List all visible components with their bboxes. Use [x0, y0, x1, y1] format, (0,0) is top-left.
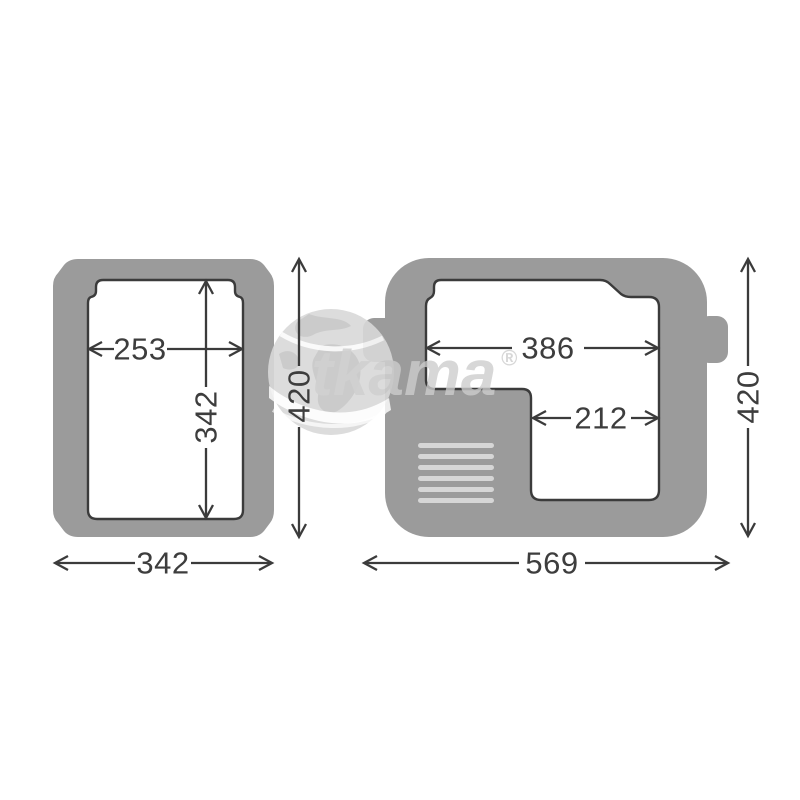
- left-view: [53, 259, 274, 537]
- vent-slat: [418, 465, 494, 470]
- dimension-drawing: tkama ® 253 342 420: [0, 0, 800, 800]
- dim-label-left-inner-depth: 342: [189, 390, 224, 443]
- dim-label-left-overall-width: 342: [136, 546, 189, 581]
- dim-left-overall-depth: 420: [282, 259, 317, 537]
- dim-label-right-overall-width: 569: [525, 546, 578, 581]
- vent-slat: [418, 476, 494, 481]
- dim-label-left-overall-depth: 420: [282, 369, 317, 422]
- vent-slat: [418, 454, 494, 459]
- dim-left-overall-width: 342: [55, 546, 272, 581]
- dim-right-overall-width: 569: [364, 546, 728, 581]
- dim-label-right-overall-depth: 420: [731, 370, 766, 423]
- dim-label-right-inner-width: 386: [521, 331, 574, 366]
- vent-slat: [418, 443, 494, 448]
- registered-trademark-icon: ®: [501, 346, 518, 371]
- dim-right-overall-depth: 420: [731, 259, 766, 536]
- vent-slat: [418, 498, 494, 503]
- dim-label-left-inner-width: 253: [113, 332, 166, 367]
- dim-label-right-compartment-width: 212: [574, 401, 627, 436]
- vent-slat: [418, 487, 494, 492]
